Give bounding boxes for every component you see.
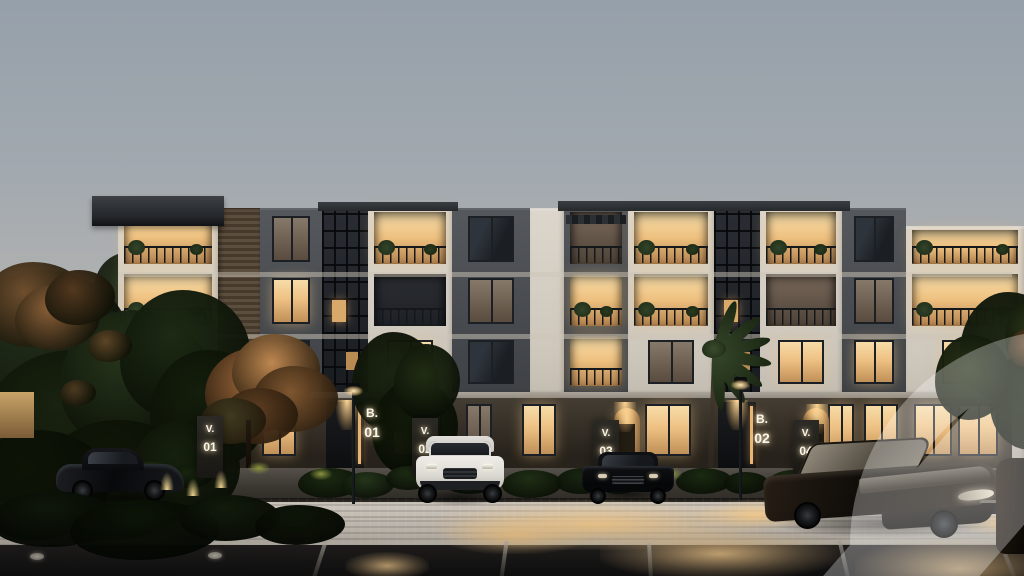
- foreground-hedge-layer: [0, 0, 1024, 576]
- lit-grass-tuft: [214, 470, 228, 488]
- lit-grass-tuft: [186, 478, 200, 496]
- lit-grass-tuft: [160, 472, 174, 490]
- architectural-render-scene: V.01B.01V.02V.03B.02V.04: [0, 0, 1024, 576]
- foreground-hedge: [255, 505, 345, 545]
